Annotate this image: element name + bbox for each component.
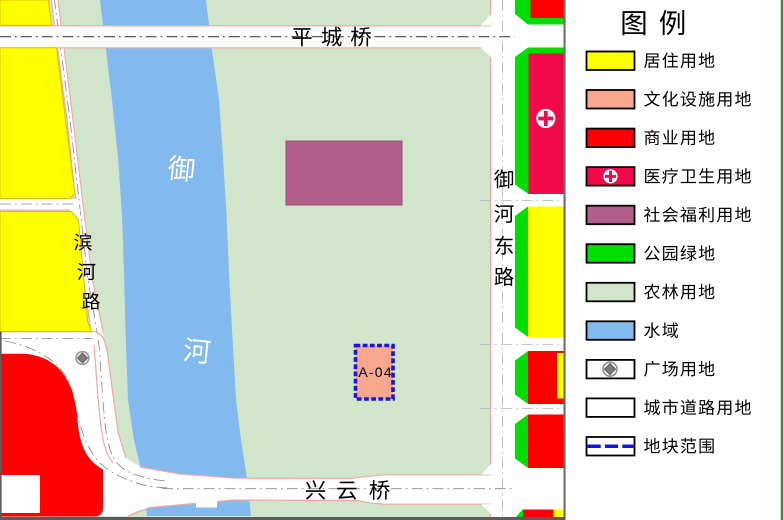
svg-text:A-04: A-04: [358, 364, 392, 380]
